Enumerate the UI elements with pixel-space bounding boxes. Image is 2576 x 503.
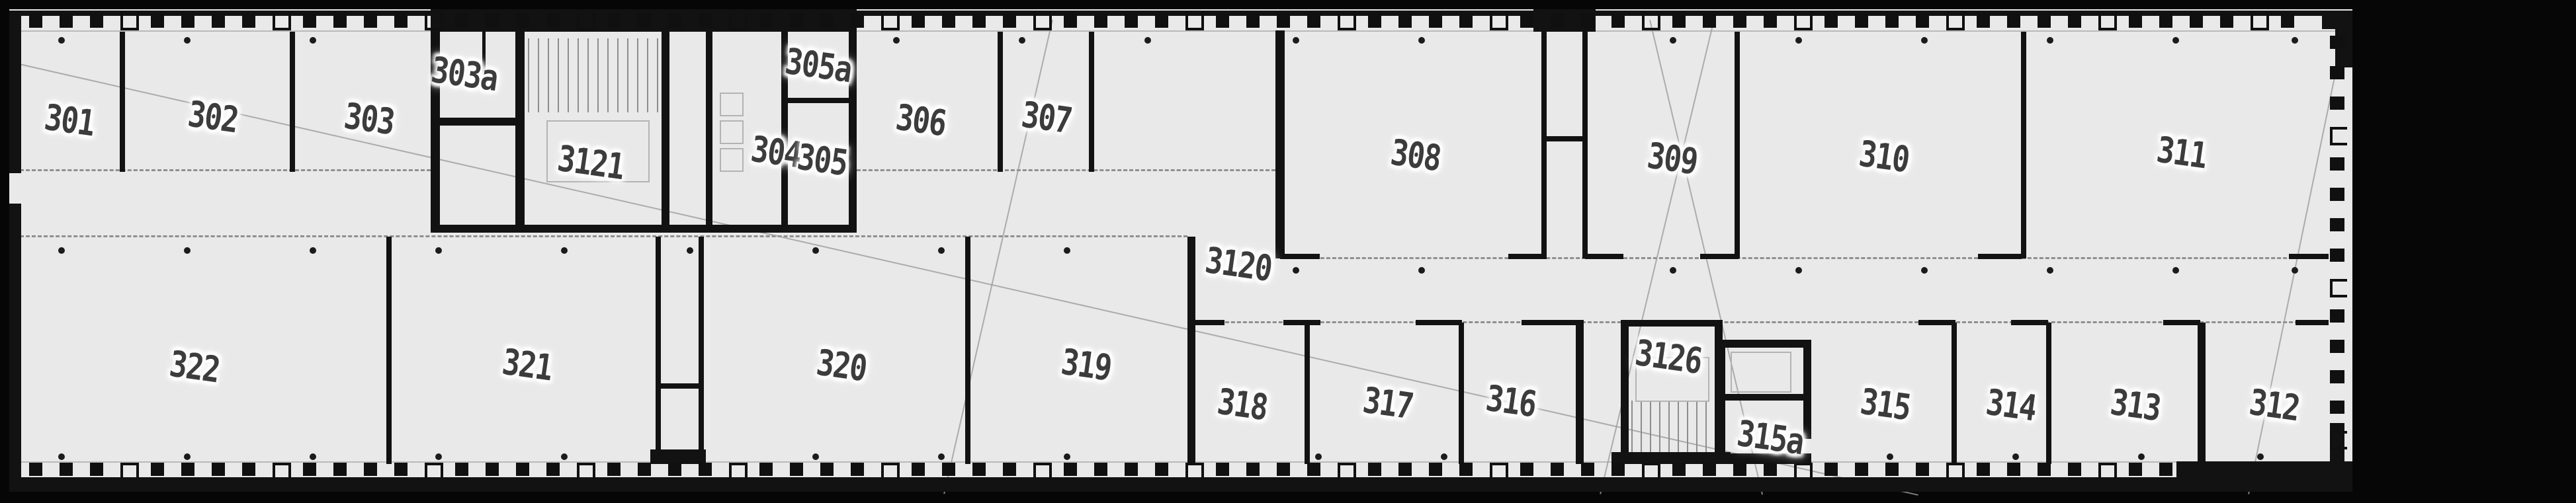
column-dot — [561, 453, 568, 460]
column-dot — [1887, 453, 1893, 460]
perimeter-wall-segment — [1490, 13, 1508, 30]
perimeter-wall-segment — [181, 463, 194, 476]
perimeter-wall-segment — [2330, 249, 2344, 262]
corridor-dashed-line — [857, 169, 1275, 171]
column-dot — [938, 247, 945, 254]
column-dot — [1670, 37, 1676, 44]
column-dot — [58, 453, 65, 460]
perimeter-wall-segment — [303, 463, 316, 476]
column-dot — [435, 453, 442, 460]
perimeter-wall-segment — [303, 13, 316, 28]
perimeter-wall-segment — [181, 13, 194, 28]
perimeter-wall-segment — [1429, 463, 1442, 476]
perimeter-wall-segment — [1703, 463, 1716, 476]
wall — [699, 237, 704, 464]
perimeter-wall-segment — [790, 463, 803, 476]
perimeter-wall-segment — [1520, 13, 1533, 28]
perimeter-wall-segment — [1855, 463, 1868, 476]
perimeter-wall-segment — [1277, 463, 1290, 476]
perimeter-wall-segment — [364, 463, 377, 476]
perimeter-wall-segment — [1885, 13, 1899, 28]
room-320-label: 320 — [814, 342, 869, 390]
perimeter-wall-segment — [1094, 463, 1107, 476]
perimeter-wall-segment — [212, 463, 225, 476]
perimeter-wall-segment — [1398, 463, 1412, 476]
wall — [965, 237, 970, 464]
perimeter-wall-segment — [1125, 13, 1138, 28]
column-dot — [2172, 37, 2179, 44]
stair-tread — [1696, 401, 1697, 453]
perimeter-wall-segment — [2068, 13, 2081, 28]
room-314-label: 314 — [1983, 381, 2038, 430]
perimeter-wall-segment — [2129, 13, 2142, 28]
column-dot — [58, 247, 65, 254]
perimeter-wall-segment — [1611, 463, 1625, 476]
perimeter-wall-segment — [2098, 13, 2117, 30]
perimeter-wall-segment — [972, 463, 986, 476]
stair-tread — [657, 38, 658, 112]
wall — [1459, 323, 1464, 464]
perimeter-wall-segment — [364, 13, 377, 28]
wall — [2289, 254, 2329, 259]
wall — [1621, 320, 1629, 464]
column-dot — [435, 247, 442, 254]
wall — [1582, 32, 1588, 258]
perimeter-wall-segment — [1338, 463, 1356, 479]
wall — [2163, 320, 2200, 325]
fixture-outline — [720, 93, 744, 116]
room-308-label: 308 — [1388, 132, 1443, 180]
wall — [1280, 254, 1320, 259]
perimeter-wall-segment — [607, 13, 621, 28]
perimeter-wall-segment — [273, 463, 291, 479]
perimeter-wall-segment — [1246, 13, 1260, 28]
stair-tread — [587, 38, 589, 112]
perimeter-wall-segment — [699, 463, 712, 476]
perimeter-wall-segment — [1064, 463, 1077, 476]
room-313-label: 313 — [2108, 381, 2163, 430]
wall — [650, 449, 706, 464]
wall — [515, 30, 525, 233]
wall — [1978, 254, 2022, 259]
wall — [1576, 320, 1584, 464]
wall — [290, 32, 295, 172]
wall — [2011, 320, 2048, 325]
wall — [1416, 320, 1462, 325]
column-dot — [2047, 37, 2053, 44]
perimeter-wall-segment — [151, 13, 164, 28]
column-dot — [2138, 453, 2145, 460]
perimeter-wall-segment — [90, 13, 103, 28]
perimeter-wall-segment — [759, 13, 773, 28]
perimeter-wall-segment — [1246, 463, 1260, 476]
stair-tread — [627, 38, 628, 112]
column-dot — [1418, 267, 1425, 274]
perimeter-wall-segment — [486, 13, 499, 28]
wall — [1508, 254, 1547, 259]
perimeter-wall-segment — [1429, 13, 1442, 28]
corridor-dashed-line — [20, 235, 1187, 237]
stair-tread — [538, 38, 539, 112]
perimeter-wall-segment — [425, 463, 443, 479]
perimeter-wall-segment — [2281, 13, 2294, 28]
perimeter-wall-segment — [1764, 463, 1777, 476]
perimeter-wall-segment — [2068, 463, 2081, 476]
stair-tread — [1668, 401, 1670, 453]
stair-tread — [578, 38, 579, 112]
perimeter-wall-segment — [2330, 279, 2347, 297]
room-317-label: 317 — [1360, 379, 1415, 428]
wall — [431, 225, 857, 233]
perimeter-wall-segment — [516, 463, 529, 476]
perimeter-wall-segment — [425, 13, 443, 30]
perimeter-wall-segment — [759, 463, 773, 476]
stair-tread — [1678, 401, 1679, 453]
perimeter-wall-segment — [1003, 463, 1016, 476]
perimeter-wall-segment — [1216, 463, 1229, 476]
wall — [1717, 340, 1725, 464]
perimeter-wall-segment — [881, 463, 900, 479]
perimeter-wall-segment — [394, 13, 408, 28]
perimeter-wall-segment — [1825, 463, 1838, 476]
perimeter-wall-segment — [2251, 13, 2269, 30]
column-dot — [2047, 267, 2053, 274]
wall — [1717, 340, 1811, 348]
room-305-label: 305 — [794, 136, 849, 184]
perimeter-wall-segment — [2330, 188, 2344, 201]
column-dot — [1064, 453, 1070, 460]
column-dot — [2292, 37, 2298, 44]
perimeter-wall-segment — [2159, 463, 2172, 476]
wall — [706, 30, 712, 233]
room-315-label: 315 — [1858, 381, 1912, 429]
perimeter-wall-segment — [455, 463, 468, 476]
perimeter-wall-segment — [1551, 13, 1564, 28]
column-dot — [310, 247, 316, 254]
wall — [1283, 320, 1320, 325]
perimeter-wall-segment — [1733, 13, 1746, 28]
stair-tread — [1687, 401, 1688, 453]
column-dot — [1418, 37, 1425, 44]
wall — [1918, 320, 1955, 325]
room-322-label: 322 — [167, 343, 222, 391]
column-dot — [1315, 453, 1322, 460]
perimeter-wall-segment — [2007, 463, 2020, 476]
column-dot — [1441, 453, 1447, 460]
perimeter-wall-segment — [1642, 13, 1660, 30]
perimeter-wall-segment — [120, 463, 139, 479]
wall — [1275, 30, 1285, 258]
perimeter-wall-segment — [29, 463, 42, 476]
perimeter-guide-line — [9, 461, 2352, 463]
perimeter-wall-segment — [1155, 13, 1168, 28]
column-dot — [812, 247, 819, 254]
perimeter-wall-segment — [638, 463, 651, 476]
perimeter-wall-segment — [212, 13, 225, 28]
perimeter-wall-segment — [546, 13, 560, 28]
wall — [9, 204, 21, 481]
room-307-label: 307 — [1019, 94, 1074, 142]
stair-tread — [647, 38, 648, 112]
column-dot — [2292, 267, 2298, 274]
perimeter-wall-segment — [2330, 97, 2344, 110]
perimeter-wall-segment — [90, 463, 103, 476]
perimeter-wall-segment — [1794, 463, 1813, 479]
stair-tread — [1705, 401, 1707, 453]
perimeter-wall-segment — [577, 13, 595, 30]
perimeter-wall-segment — [1277, 13, 1290, 28]
wall — [788, 98, 849, 103]
wall — [1621, 320, 1723, 327]
perimeter-wall-segment — [1977, 13, 1990, 28]
room-309-label: 309 — [1645, 135, 1699, 183]
perimeter-wall-segment — [2129, 463, 2142, 476]
perimeter-wall-segment — [942, 13, 955, 28]
wall — [998, 32, 1003, 172]
perimeter-wall-segment — [2330, 157, 2344, 171]
perimeter-wall-segment — [2330, 340, 2344, 353]
perimeter-wall-segment — [881, 13, 900, 30]
room-316-label: 316 — [1483, 377, 1538, 426]
perimeter-wall-segment — [2330, 370, 2344, 383]
perimeter-wall-segment — [60, 463, 73, 476]
column-dot — [58, 37, 65, 44]
wall — [9, 11, 2352, 16]
perimeter-wall-segment — [29, 13, 42, 28]
perimeter-wall-segment — [577, 463, 595, 479]
perimeter-wall-segment — [1490, 463, 1508, 479]
perimeter-wall-segment — [2330, 36, 2344, 49]
perimeter-wall-segment — [1916, 463, 1929, 476]
room-318-label: 318 — [1215, 381, 1269, 429]
perimeter-wall-segment — [2190, 13, 2203, 28]
wall — [2021, 32, 2026, 258]
column-dot — [2172, 267, 2179, 274]
wall — [1585, 254, 1623, 259]
perimeter-wall-segment — [668, 13, 681, 28]
perimeter-wall-segment — [1916, 13, 1929, 28]
wall — [1700, 254, 1739, 259]
wall — [1541, 32, 1547, 258]
perimeter-wall-segment — [2007, 13, 2020, 28]
corridor-dashed-line — [20, 169, 431, 171]
column-dot — [184, 37, 191, 44]
perimeter-wall-segment — [1033, 13, 1052, 30]
perimeter-wall-segment — [2038, 13, 2051, 28]
perimeter-wall-segment — [1855, 13, 1868, 28]
corridor-dashed-line — [1195, 321, 2329, 323]
perimeter-wall-segment — [699, 13, 712, 28]
perimeter-wall-segment — [394, 463, 408, 476]
perimeter-wall-segment — [486, 463, 499, 476]
wall — [9, 477, 2352, 492]
perimeter-wall-segment — [1946, 13, 1965, 30]
perimeter-wall-segment — [820, 463, 834, 476]
wall — [1717, 394, 1811, 401]
wall — [386, 237, 392, 464]
perimeter-wall-segment — [1977, 463, 1990, 476]
perimeter-wall-segment — [1368, 13, 1381, 28]
room-301-label: 301 — [42, 97, 97, 145]
column-dot — [687, 247, 693, 254]
perimeter-wall-segment — [790, 13, 803, 28]
perimeter-wall-segment — [607, 463, 621, 476]
perimeter-wall-segment — [1064, 13, 1077, 28]
perimeter-wall-segment — [1398, 13, 1412, 28]
perimeter-wall-segment — [1825, 13, 1838, 28]
column-dot — [812, 453, 819, 460]
perimeter-wall-segment — [1459, 13, 1473, 28]
perimeter-wall-segment — [1155, 463, 1168, 476]
perimeter-wall-segment — [2330, 127, 2347, 145]
column-dot — [2012, 453, 2019, 460]
column-dot — [1144, 37, 1151, 44]
column-dot — [1921, 267, 1928, 274]
stair-tread — [1659, 401, 1660, 453]
stair-tread — [1650, 401, 1651, 453]
perimeter-wall-segment — [1672, 13, 1686, 28]
perimeter-wall-segment — [242, 463, 255, 476]
room-303-label: 303 — [341, 95, 396, 143]
column-dot — [310, 453, 316, 460]
perimeter-wall-segment — [1125, 463, 1138, 476]
perimeter-wall-segment — [1459, 463, 1473, 476]
perimeter-wall-segment — [242, 13, 255, 28]
perimeter-wall-segment — [1003, 13, 1016, 28]
perimeter-wall-segment — [1307, 13, 1320, 28]
perimeter-wall-segment — [942, 463, 955, 476]
perimeter-wall-segment — [729, 13, 748, 30]
column-dot — [561, 247, 568, 254]
stair-tread — [558, 38, 559, 112]
perimeter-wall-segment — [2220, 13, 2233, 28]
perimeter-guide-line — [9, 30, 2352, 32]
perimeter-wall-segment — [516, 13, 529, 28]
wall — [1089, 32, 1094, 172]
wall — [2296, 320, 2329, 325]
perimeter-wall-segment — [851, 13, 864, 28]
stair-tread — [617, 38, 619, 112]
perimeter-wall-segment — [2098, 463, 2117, 479]
perimeter-wall-segment — [1185, 13, 1204, 30]
wall — [433, 118, 518, 126]
perimeter-wall-segment — [912, 13, 925, 28]
perimeter-wall-segment — [1307, 463, 1320, 476]
stair-tread — [1641, 401, 1642, 453]
room-311-label: 311 — [2154, 129, 2209, 177]
column-dot — [1293, 37, 1299, 44]
column-dot — [1670, 267, 1676, 274]
wall — [656, 383, 704, 389]
corridor-dashed-line — [1285, 257, 2329, 259]
column-dot — [893, 37, 900, 44]
room-302-label: 302 — [185, 93, 240, 141]
perimeter-wall-segment — [2330, 218, 2344, 231]
perimeter-wall-segment — [1368, 463, 1381, 476]
perimeter-wall-segment — [1581, 463, 1594, 476]
perimeter-wall-segment — [2330, 431, 2347, 449]
perimeter-wall-segment — [1611, 13, 1625, 28]
fixture-outline — [720, 120, 744, 144]
stair-tread — [548, 38, 549, 112]
column-dot — [1293, 267, 1299, 274]
perimeter-wall-segment — [1733, 463, 1746, 476]
perimeter-wall-segment — [2330, 309, 2344, 323]
perimeter-wall-segment — [1520, 463, 1533, 476]
perimeter-wall-segment — [1185, 463, 1204, 479]
room-321-label: 321 — [499, 341, 554, 389]
stair-tread — [568, 38, 569, 112]
room-310-label: 310 — [1856, 133, 1911, 181]
wall — [1187, 237, 1195, 464]
column-dot — [2257, 453, 2264, 460]
perimeter-wall-segment — [151, 463, 164, 476]
perimeter-wall-segment — [972, 13, 986, 28]
perimeter-wall-segment — [2330, 66, 2344, 79]
stair-tread — [597, 38, 599, 112]
wall — [1305, 323, 1310, 464]
wall — [2046, 323, 2051, 464]
stair-tread — [637, 38, 638, 112]
perimeter-wall-segment — [1216, 13, 1229, 28]
column-dot — [1019, 37, 1025, 44]
perimeter-wall-segment — [668, 463, 681, 476]
perimeter-wall-segment — [820, 13, 834, 28]
column-dot — [1921, 37, 1928, 44]
perimeter-wall-segment — [333, 463, 347, 476]
wall — [1541, 136, 1588, 141]
fixture-outline — [1731, 352, 1791, 393]
room-312-label: 312 — [2247, 381, 2301, 430]
perimeter-wall-segment — [1764, 13, 1777, 28]
wall — [120, 32, 125, 172]
stair-tread — [1631, 401, 1633, 453]
perimeter-wall-segment — [851, 463, 864, 476]
stair-tread — [528, 38, 529, 112]
perimeter-wall-segment — [333, 13, 347, 28]
room-306-label: 306 — [893, 97, 948, 145]
column-dot — [1795, 37, 1802, 44]
column-dot — [184, 247, 191, 254]
perimeter-wall-segment — [2330, 401, 2344, 414]
perimeter-wall-segment — [60, 13, 73, 28]
perimeter-wall-segment — [546, 463, 560, 476]
column-dot — [1064, 247, 1070, 254]
column-dot — [310, 37, 316, 44]
floor-plan-canvas: 301302303303a3121304305305a3063073083093… — [0, 0, 2576, 503]
perimeter-wall-segment — [120, 13, 139, 30]
perimeter-wall-segment — [1581, 13, 1594, 28]
stair-tread — [607, 38, 609, 112]
perimeter-wall-segment — [455, 13, 468, 28]
wall — [1187, 320, 1224, 325]
perimeter-wall-segment — [912, 463, 925, 476]
wall — [2198, 323, 2206, 464]
perimeter-wall-segment — [1794, 13, 1813, 30]
perimeter-wall-segment — [638, 13, 651, 28]
perimeter-wall-segment — [1094, 13, 1107, 28]
fixture-outline — [720, 148, 744, 172]
wall — [656, 237, 661, 464]
room-319-label: 319 — [1058, 341, 1113, 389]
wall — [1735, 32, 1740, 258]
perimeter-wall-segment — [2038, 463, 2051, 476]
perimeter-wall-segment — [1885, 463, 1899, 476]
perimeter-wall-segment — [1642, 463, 1660, 479]
column-dot — [1795, 267, 1802, 274]
perimeter-wall-segment — [1338, 13, 1356, 30]
perimeter-wall-segment — [1946, 463, 1965, 479]
